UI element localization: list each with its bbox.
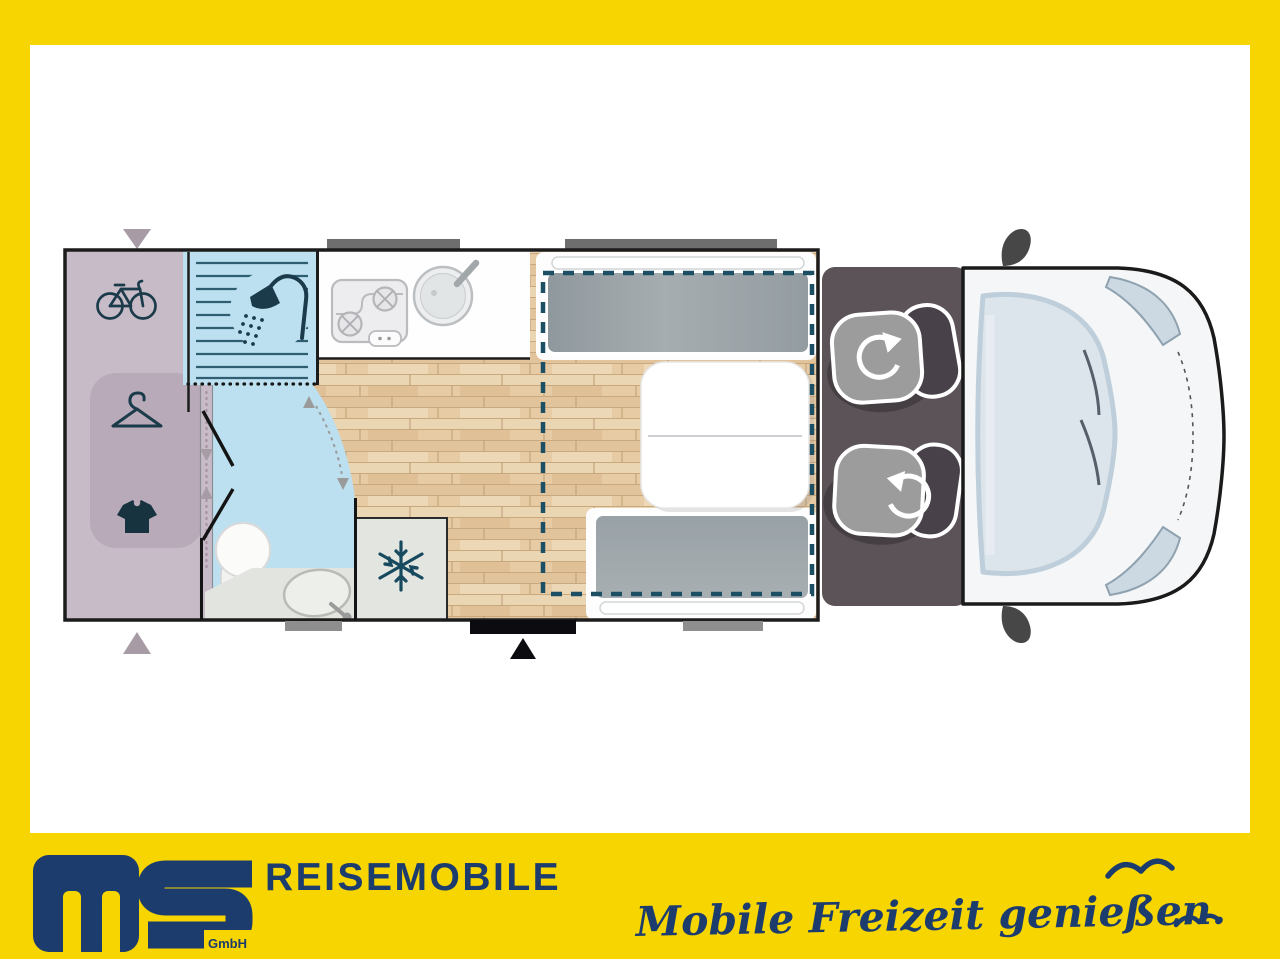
floorplan-advert: GmbH REISEMOBILE Mobile Freizeit genieße… (0, 0, 1280, 959)
advert-page: GmbH REISEMOBILE Mobile Freizeit genieße… (0, 0, 1280, 959)
stove-icon (332, 280, 407, 346)
company-name: REISEMOBILE (265, 856, 561, 899)
cab-and-front (821, 229, 1224, 643)
table (641, 362, 814, 512)
rear-garage (65, 250, 203, 620)
bench-bottom (586, 508, 816, 620)
seat-cushion (830, 311, 924, 405)
bench-top-headrest (552, 257, 804, 269)
floorplan (65, 229, 818, 659)
fridge (355, 518, 447, 620)
bench-bottom-headrest (600, 602, 804, 614)
bathroom (200, 385, 355, 622)
windshield (978, 294, 1115, 573)
bench-top (536, 252, 816, 360)
swivel-seat-passenger (821, 437, 965, 549)
bathroom-step (285, 621, 342, 631)
dinette-step (683, 621, 763, 631)
logo-subtext: GmbH (208, 936, 247, 951)
seat-cushion (833, 444, 925, 536)
